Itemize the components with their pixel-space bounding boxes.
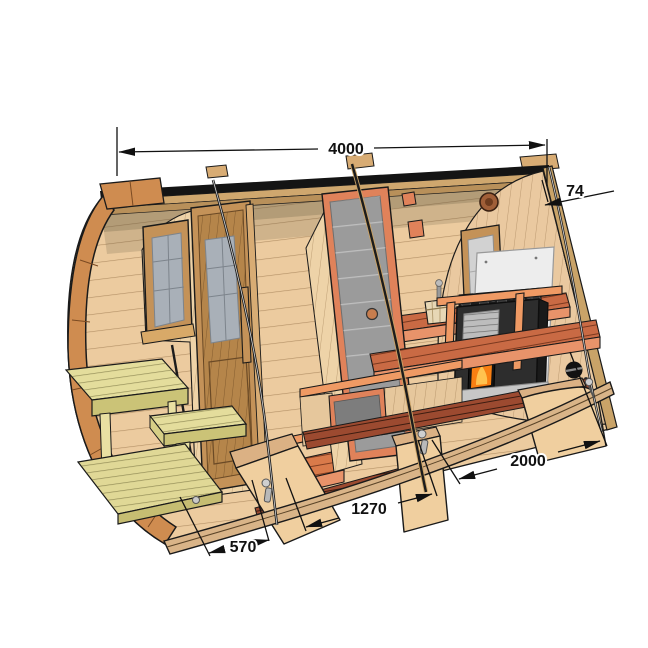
dimension-label-570: 570	[230, 539, 257, 556]
barrel-sauna-diagram: 4000 74 2000 1270 570	[0, 0, 648, 648]
door-knob	[367, 309, 378, 320]
dimension-label-2000: 2000	[510, 453, 546, 470]
dimension-label-1270: 1270	[351, 501, 387, 518]
strap-bracket	[402, 192, 416, 206]
strap-roof-bracket	[206, 165, 228, 178]
sauna-cutaway-svg: 4000 74 2000 1270 570	[0, 0, 648, 648]
strap-shackle	[193, 497, 200, 504]
front-window	[141, 220, 195, 344]
strap-bracket	[408, 220, 424, 238]
dimension-label-4000: 4000	[328, 141, 364, 158]
dimension-label-74: 74	[566, 183, 584, 200]
